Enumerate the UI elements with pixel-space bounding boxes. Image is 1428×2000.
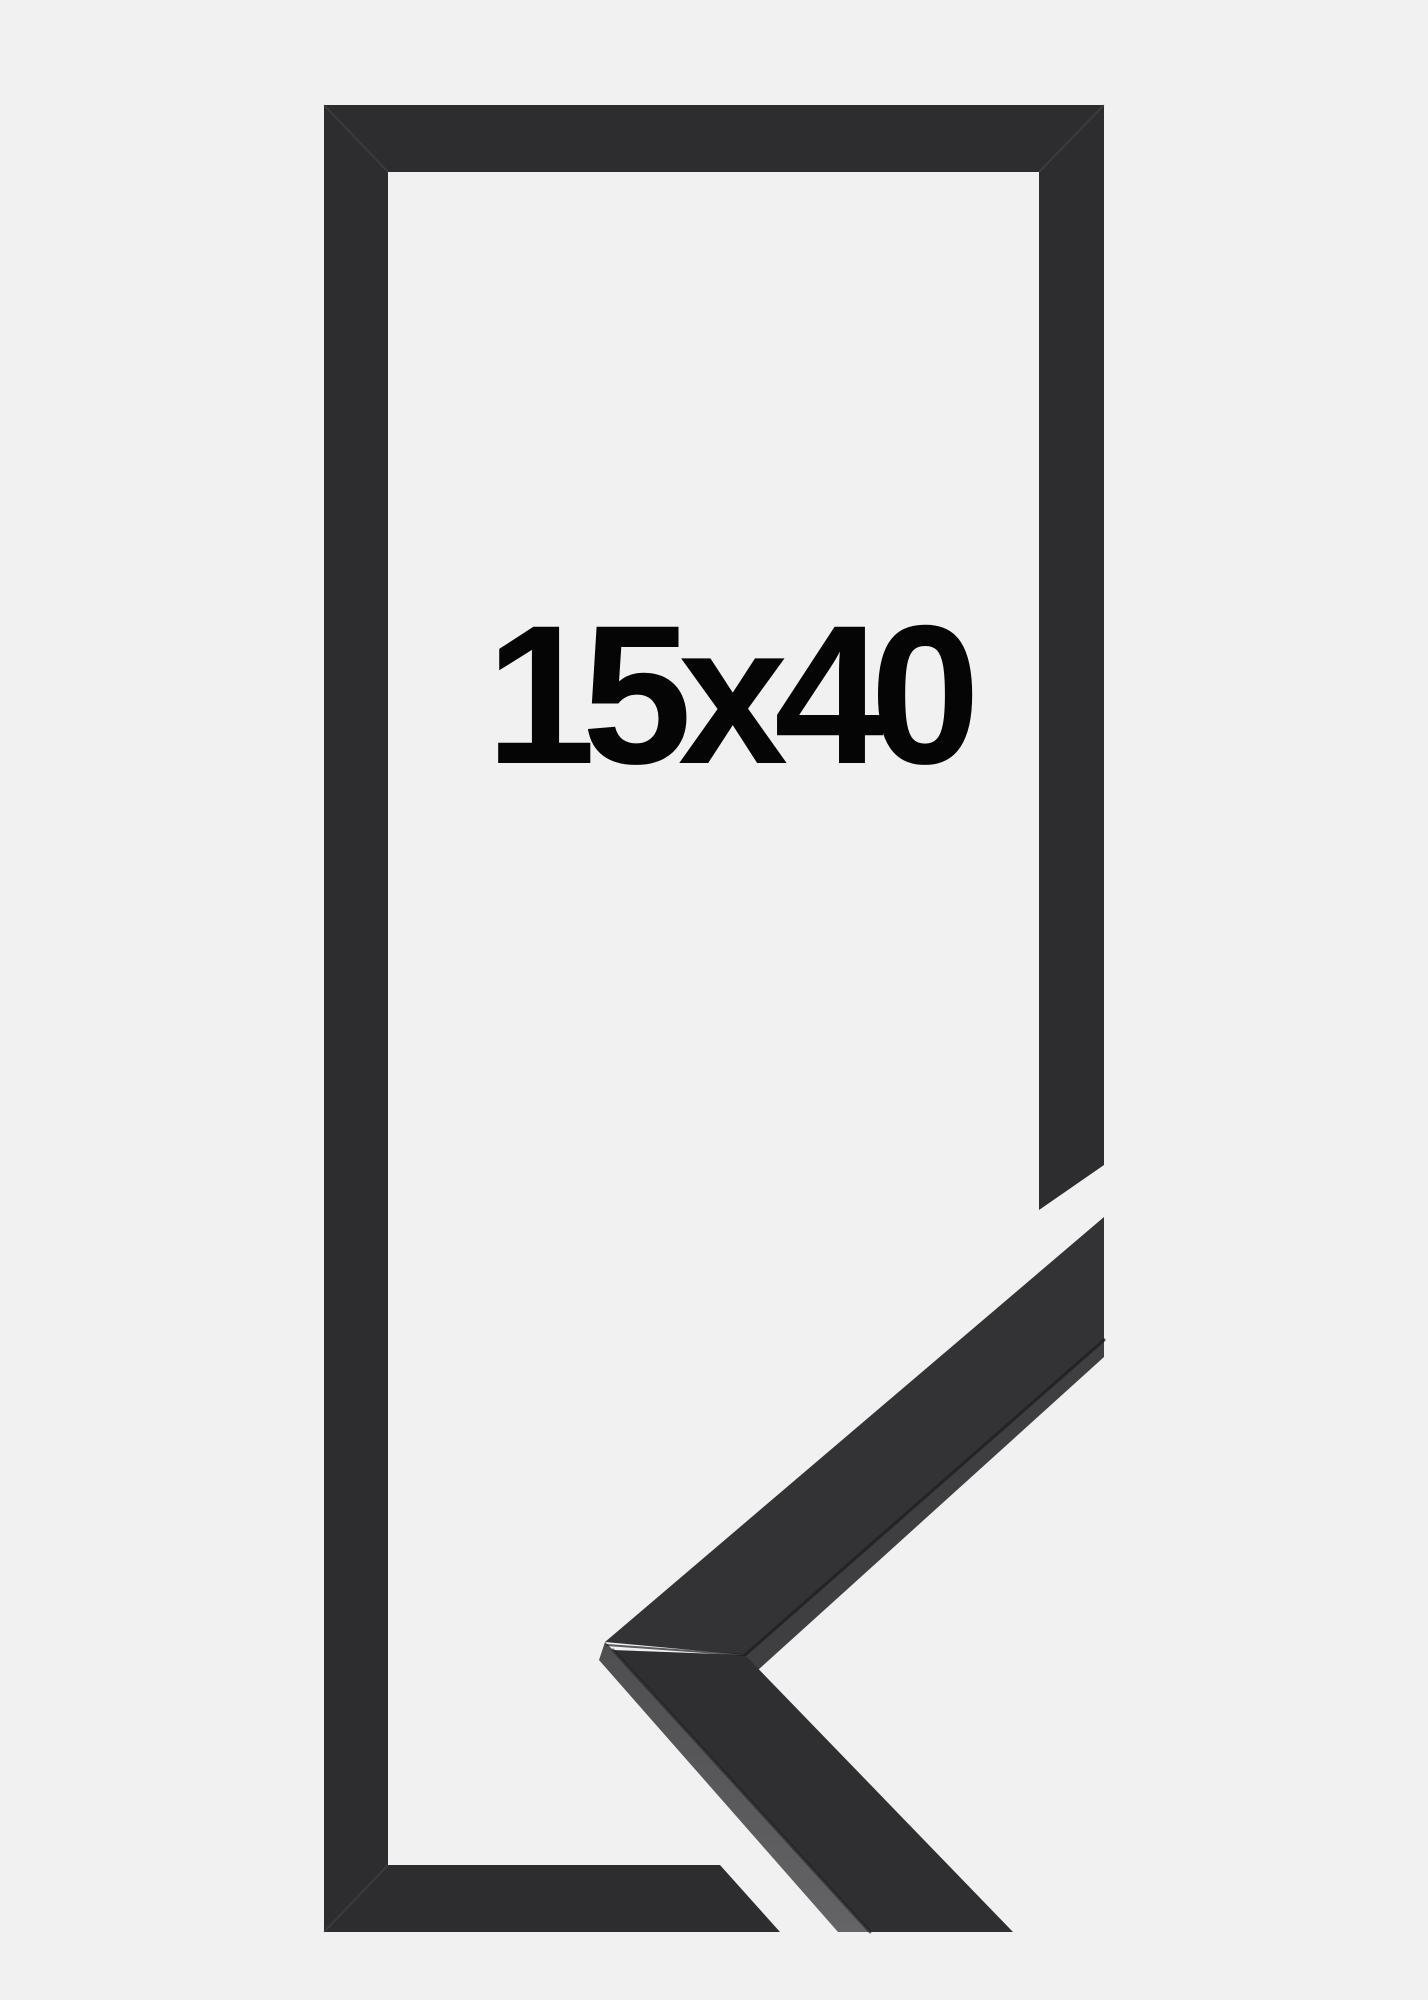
frame-bottom-bar-cut (324, 1865, 780, 1932)
frame-right-bar-cut (1039, 105, 1104, 1210)
frame-photo-graphic (0, 0, 1428, 2000)
corner-sample-upper-arm (605, 1217, 1104, 1655)
corner-sample (599, 1217, 1104, 1932)
frame-left-bar (324, 105, 388, 1932)
size-label: 15x40 (486, 595, 967, 795)
product-photo-frame-15x40: 15x40 (0, 0, 1428, 2000)
frame-top-bar (324, 105, 1104, 172)
